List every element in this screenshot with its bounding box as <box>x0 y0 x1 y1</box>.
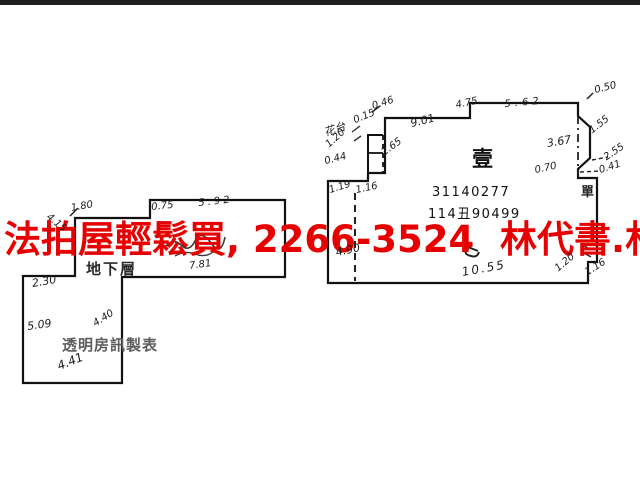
tick-mark <box>587 93 593 99</box>
maker-credit-label: 透明房訊製表 <box>62 338 158 353</box>
side-box-label: 單 <box>581 186 594 199</box>
leader-line <box>580 171 600 172</box>
handwriting-scribble <box>352 126 361 141</box>
plan-serial-number: 31140277 <box>432 186 510 199</box>
parcel-serial-number: 114丑90499 <box>428 208 521 221</box>
floorplan-scan: 法拍屋輕鬆買, 2266-3524 林代書.林經理 1.80 4.15 0.75… <box>0 0 640 480</box>
stairwell-box <box>368 135 383 173</box>
basement-floor-label: 地下層 <box>86 262 137 277</box>
measurement-label: 5.09 <box>26 318 52 332</box>
unit-number-label: 壹 <box>472 149 493 170</box>
watermark-text: 法拍屋輕鬆買, 2266-3524 林代書.林經理 <box>4 221 640 258</box>
